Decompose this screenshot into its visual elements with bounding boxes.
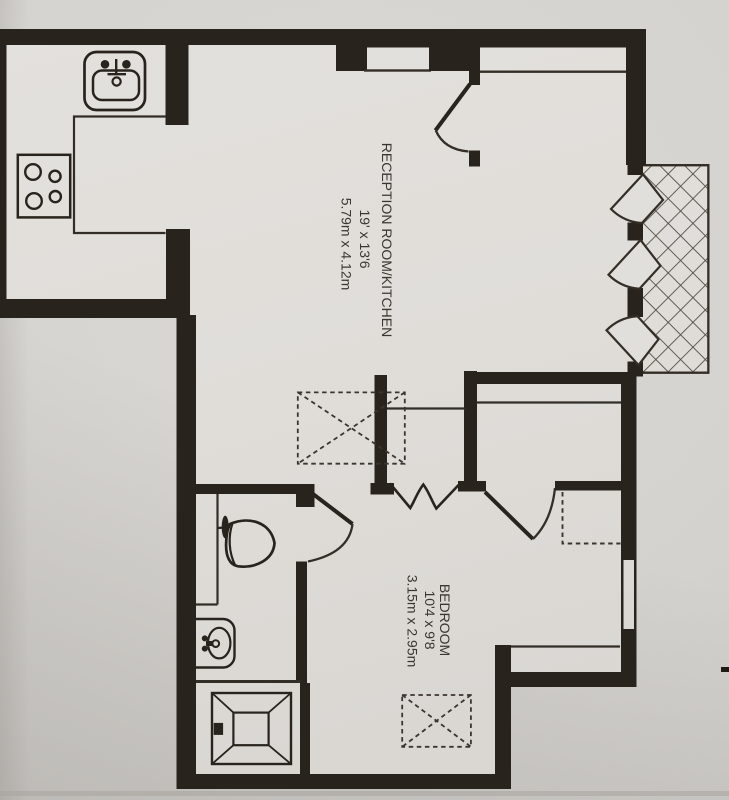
- svg-text:BEDROOM: BEDROOM: [437, 584, 453, 656]
- svg-text:5.79m x 4.12m: 5.79m x 4.12m: [339, 198, 355, 291]
- svg-text:10'4 x 9'8: 10'4 x 9'8: [422, 590, 438, 649]
- svg-text:RECEPTION ROOM/KITCHEN: RECEPTION ROOM/KITCHEN: [379, 143, 395, 337]
- svg-text:19' x 13'6: 19' x 13'6: [357, 209, 373, 268]
- svg-text:3.15m x 2.95m: 3.15m x 2.95m: [405, 575, 421, 668]
